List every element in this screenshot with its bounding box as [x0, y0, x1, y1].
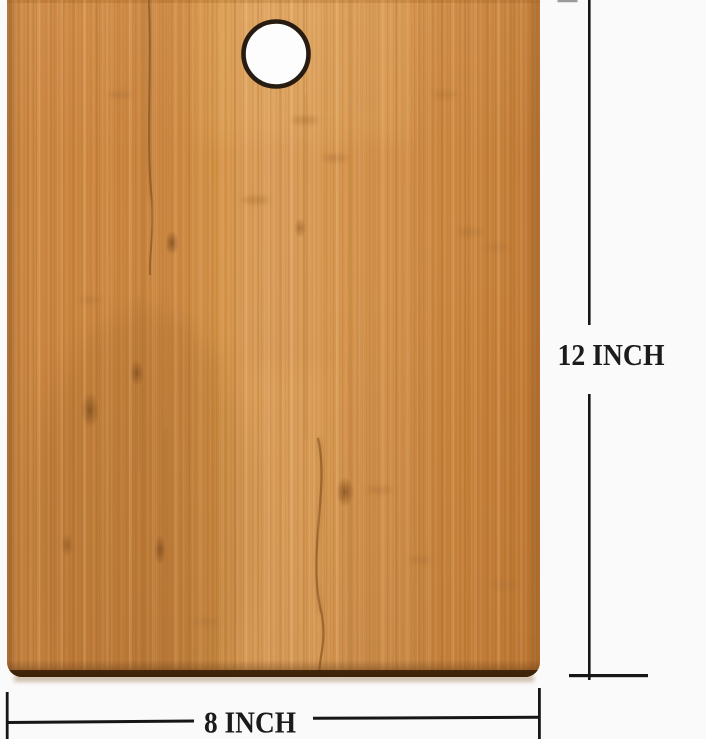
svg-text:12 INCH: 12 INCH: [558, 337, 665, 372]
svg-text:8 INCH: 8 INCH: [204, 704, 296, 739]
